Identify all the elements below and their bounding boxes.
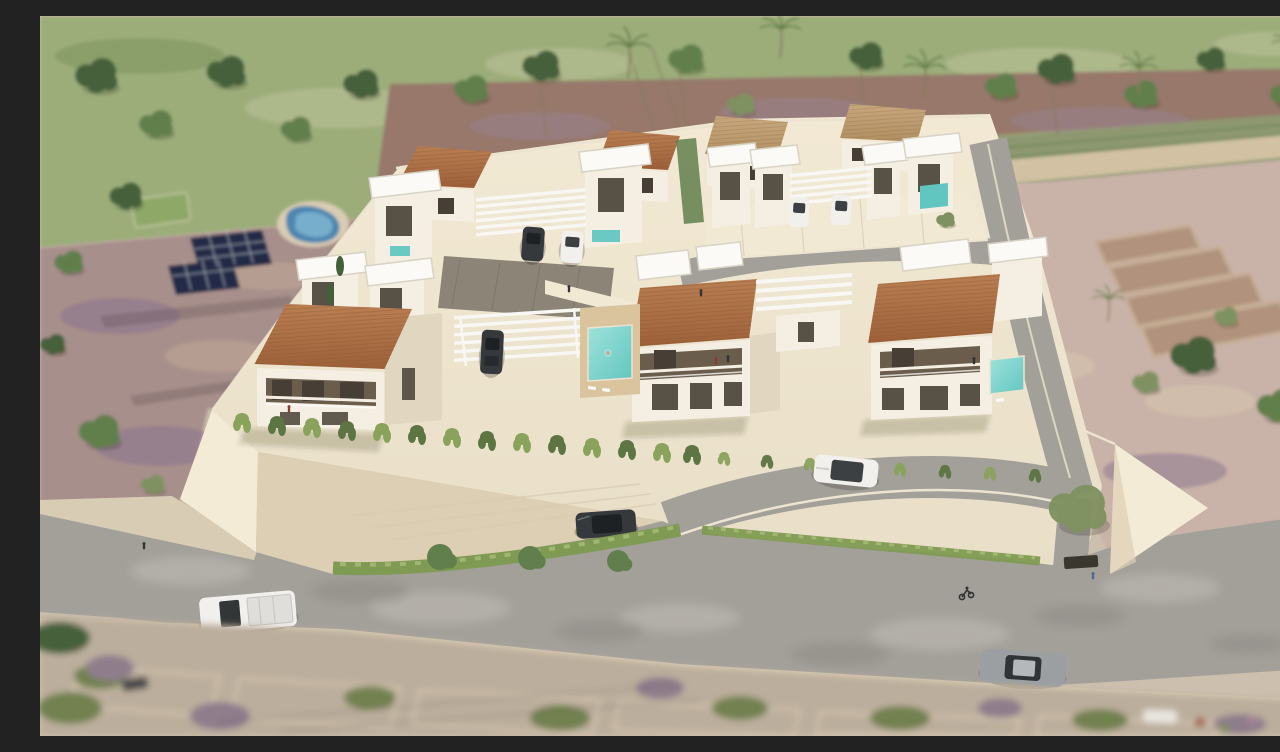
parked-car-white-3 [830, 194, 852, 225]
plunge-pool [390, 246, 410, 256]
pool-court [580, 304, 640, 398]
pedestrian-walkway [568, 285, 571, 292]
neighbor-pool [277, 201, 349, 247]
plunge-pool [592, 230, 620, 242]
plunge-pool [920, 183, 948, 209]
drainage-grate [1064, 555, 1099, 569]
pedestrian-sidewalk [143, 542, 146, 549]
villa-pool [990, 356, 1024, 394]
front-villa-left [254, 304, 442, 430]
pedestrian-rear-street [700, 289, 703, 296]
architectural-render [40, 16, 1280, 736]
swimmer [606, 351, 610, 355]
blurred-parked-car [1143, 709, 1177, 723]
pedestrian-entrance [1092, 572, 1095, 579]
parked-car-white-2 [788, 196, 810, 227]
